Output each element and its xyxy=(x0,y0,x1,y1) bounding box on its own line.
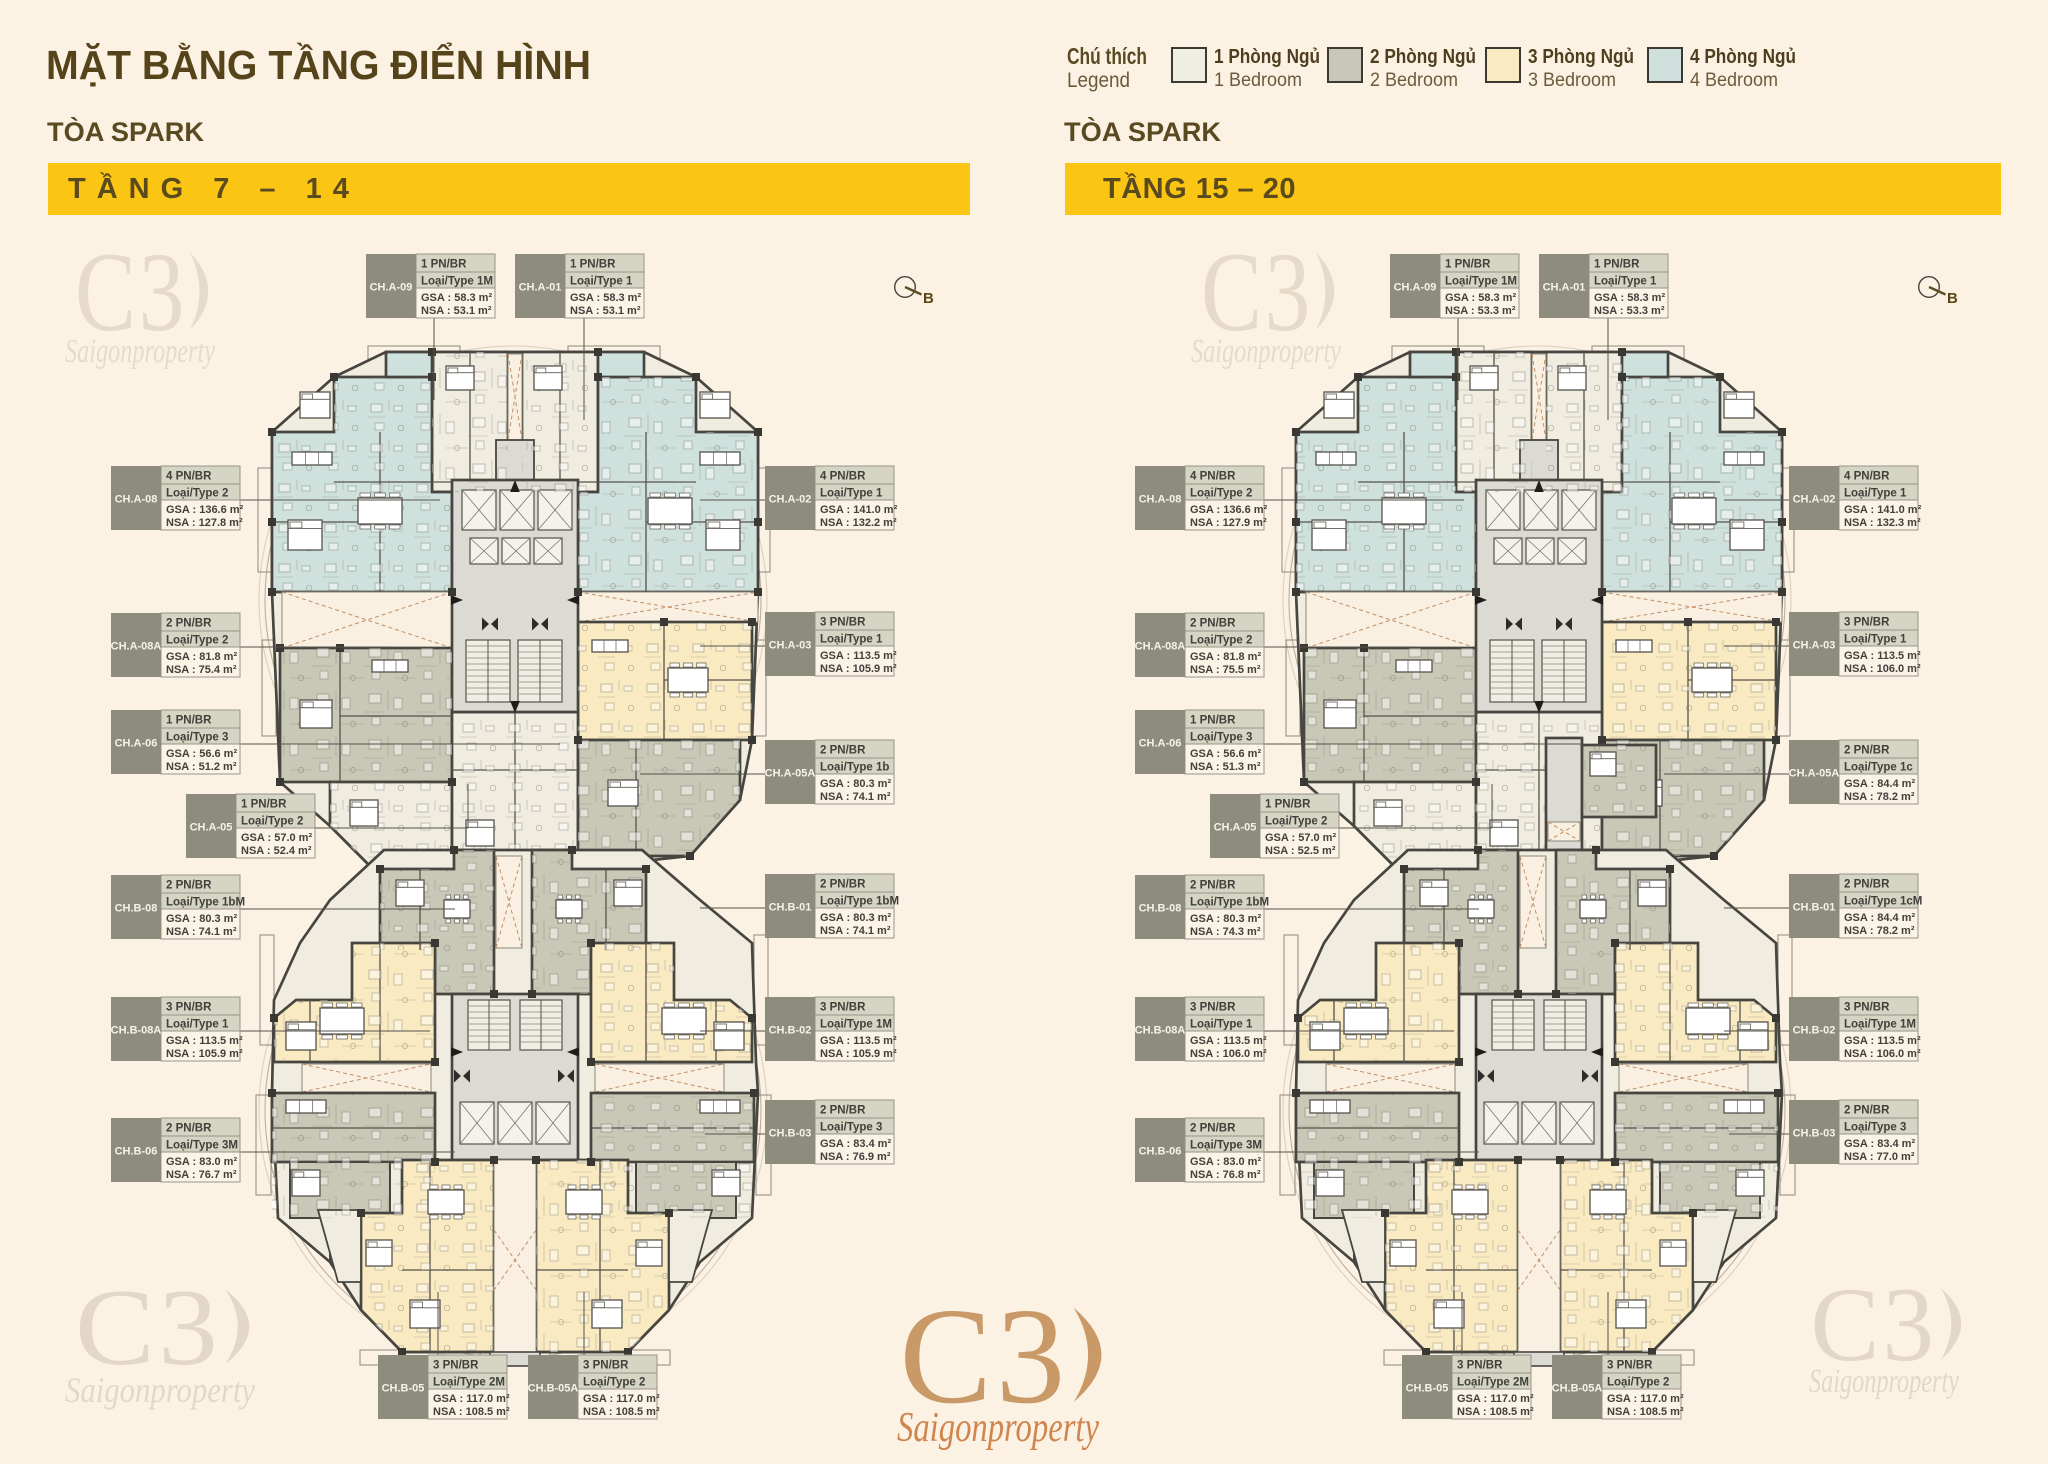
svg-text:NSA : 127.8 m²: NSA : 127.8 m² xyxy=(166,517,243,529)
svg-text:1 PN/BR: 1 PN/BR xyxy=(421,259,467,271)
svg-text:B: B xyxy=(923,290,934,307)
svg-text:NSA : 53.3 m²: NSA : 53.3 m² xyxy=(1445,305,1516,317)
svg-text:Loại/Type 1c: Loại/Type 1c xyxy=(1844,762,1913,774)
svg-text:GSA : 136.6 m²: GSA : 136.6 m² xyxy=(166,504,244,516)
svg-text:3 PN/BR: 3 PN/BR xyxy=(1457,1360,1503,1372)
svg-text:2 PN/BR: 2 PN/BR xyxy=(820,1105,866,1117)
svg-text:NSA : 52.4 m²: NSA : 52.4 m² xyxy=(241,845,312,857)
svg-text:CH.B-01: CH.B-01 xyxy=(1793,902,1836,914)
svg-text:Saigonproperty: Saigonproperty xyxy=(65,1370,255,1410)
svg-text:CH.B-08A: CH.B-08A xyxy=(111,1025,162,1037)
svg-text:CH.A-01: CH.A-01 xyxy=(1543,282,1586,294)
svg-text:NSA : 75.4 m²: NSA : 75.4 m² xyxy=(166,664,237,676)
svg-text:NSA : 74.1 m²: NSA : 74.1 m² xyxy=(166,926,237,938)
svg-text:Loại/Type 2: Loại/Type 2 xyxy=(166,488,228,500)
svg-text:MẶT BẰNG TẦNG ĐIỂN HÌNH: MẶT BẰNG TẦNG ĐIỂN HÌNH xyxy=(46,41,591,88)
svg-text:1 PN/BR: 1 PN/BR xyxy=(1594,259,1640,271)
svg-text:Saigonproperty: Saigonproperty xyxy=(65,333,216,370)
svg-text:NSA : 132.2 m²: NSA : 132.2 m² xyxy=(820,517,897,529)
svg-text:Chú thích: Chú thích xyxy=(1067,43,1147,69)
svg-text:CH.A-03: CH.A-03 xyxy=(1793,640,1836,652)
svg-text:CH.A-02: CH.A-02 xyxy=(1793,494,1836,506)
svg-text:GSA : 83.0 m²: GSA : 83.0 m² xyxy=(166,1156,237,1168)
svg-text:3 PN/BR: 3 PN/BR xyxy=(433,1360,479,1372)
svg-text:B: B xyxy=(1947,290,1958,307)
svg-text:3 PN/BR: 3 PN/BR xyxy=(1607,1360,1653,1372)
svg-text:NSA : 76.8 m²: NSA : 76.8 m² xyxy=(1190,1169,1261,1181)
svg-text:GSA : 84.4 m²: GSA : 84.4 m² xyxy=(1844,912,1915,924)
svg-text:GSA : 58.3 m²: GSA : 58.3 m² xyxy=(570,292,641,304)
svg-text:NSA : 78.2 m²: NSA : 78.2 m² xyxy=(1844,791,1915,803)
svg-text:3 PN/BR: 3 PN/BR xyxy=(166,1002,212,1014)
svg-text:1 Bedroom: 1 Bedroom xyxy=(1214,70,1302,91)
svg-text:CH.A-09: CH.A-09 xyxy=(1394,282,1437,294)
svg-text:GSA : 141.0 m²: GSA : 141.0 m² xyxy=(820,504,898,516)
svg-text:3 PN/BR: 3 PN/BR xyxy=(583,1360,629,1372)
svg-text:TẦNG 7 – 14: TẦNG 7 – 14 xyxy=(68,171,360,205)
svg-text:GSA : 113.5 m²: GSA : 113.5 m² xyxy=(820,650,897,662)
svg-text:TÒA SPARK: TÒA SPARK xyxy=(47,116,204,147)
svg-text:CH.B-05: CH.B-05 xyxy=(382,1383,425,1395)
svg-text:CH.A-05A: CH.A-05A xyxy=(765,768,816,780)
svg-text:NSA : 106.0 m²: NSA : 106.0 m² xyxy=(1190,1048,1267,1060)
svg-text:Loại/Type 1M: Loại/Type 1M xyxy=(1445,276,1517,288)
svg-text:Loại/Type 1M: Loại/Type 1M xyxy=(1844,1019,1916,1031)
svg-text:2 PN/BR: 2 PN/BR xyxy=(1190,1123,1236,1135)
svg-text:GSA : 81.8 m²: GSA : 81.8 m² xyxy=(1190,651,1261,663)
svg-text:TÒA SPARK: TÒA SPARK xyxy=(1064,116,1221,147)
svg-text:Loại/Type 1M: Loại/Type 1M xyxy=(421,276,493,288)
svg-text:NSA : 51.2 m²: NSA : 51.2 m² xyxy=(166,761,237,773)
svg-text:CH.B-05: CH.B-05 xyxy=(1406,1383,1449,1395)
svg-text:CH.B-08A: CH.B-08A xyxy=(1135,1025,1186,1037)
svg-text:2 PN/BR: 2 PN/BR xyxy=(820,879,866,891)
svg-text:CH.B-03: CH.B-03 xyxy=(769,1128,812,1140)
svg-text:CH.B-03: CH.B-03 xyxy=(1793,1128,1836,1140)
svg-text:CH.A-06: CH.A-06 xyxy=(1139,738,1182,750)
svg-text:NSA : 51.3 m²: NSA : 51.3 m² xyxy=(1190,761,1261,773)
svg-text:NSA : 74.3 m²: NSA : 74.3 m² xyxy=(1190,926,1261,938)
svg-text:CH.B-05A: CH.B-05A xyxy=(528,1383,579,1395)
svg-text:NSA : 108.5 m²: NSA : 108.5 m² xyxy=(1607,1406,1684,1418)
svg-text:2 Phòng Ngủ: 2 Phòng Ngủ xyxy=(1370,46,1476,68)
svg-text:NSA : 76.7 m²: NSA : 76.7 m² xyxy=(166,1169,237,1181)
svg-text:Loại/Type 1bM: Loại/Type 1bM xyxy=(820,896,899,908)
svg-text:NSA : 108.5 m²: NSA : 108.5 m² xyxy=(433,1406,510,1418)
svg-text:GSA : 57.0 m²: GSA : 57.0 m² xyxy=(1265,832,1336,844)
svg-text:CH.B-06: CH.B-06 xyxy=(115,1146,158,1158)
svg-text:Loại/Type 1: Loại/Type 1 xyxy=(1190,1019,1253,1031)
svg-text:3 PN/BR: 3 PN/BR xyxy=(1190,1002,1236,1014)
svg-text:Loại/Type 1M: Loại/Type 1M xyxy=(820,1019,892,1031)
svg-text:Loại/Type 3M: Loại/Type 3M xyxy=(166,1140,238,1152)
svg-text:1 PN/BR: 1 PN/BR xyxy=(1190,715,1236,727)
svg-text:GSA : 113.5 m²: GSA : 113.5 m² xyxy=(1190,1035,1267,1047)
svg-text:2 PN/BR: 2 PN/BR xyxy=(166,1123,212,1135)
svg-text:CH.B-05A: CH.B-05A xyxy=(1552,1383,1603,1395)
svg-text:CH.A-08: CH.A-08 xyxy=(115,494,158,506)
svg-text:2 PN/BR: 2 PN/BR xyxy=(1844,879,1890,891)
svg-text:GSA : 113.5 m²: GSA : 113.5 m² xyxy=(1844,1035,1921,1047)
svg-text:NSA : 74.1 m²: NSA : 74.1 m² xyxy=(820,791,891,803)
svg-text:CH.A-08A: CH.A-08A xyxy=(111,641,162,653)
svg-text:NSA : 75.5 m²: NSA : 75.5 m² xyxy=(1190,664,1261,676)
svg-text:NSA : 108.5 m²: NSA : 108.5 m² xyxy=(1457,1406,1534,1418)
svg-text:GSA : 117.0 m²: GSA : 117.0 m² xyxy=(1607,1393,1684,1405)
svg-text:2 PN/BR: 2 PN/BR xyxy=(1190,618,1236,630)
svg-text:2 PN/BR: 2 PN/BR xyxy=(166,880,212,892)
svg-text:GSA : 117.0 m²: GSA : 117.0 m² xyxy=(433,1393,510,1405)
svg-text:Loại/Type 3M: Loại/Type 3M xyxy=(1190,1140,1262,1152)
svg-text:GSA : 80.3 m²: GSA : 80.3 m² xyxy=(166,913,237,925)
svg-text:NSA : 108.5 m²: NSA : 108.5 m² xyxy=(583,1406,660,1418)
svg-text:CH.B-06: CH.B-06 xyxy=(1139,1146,1182,1158)
svg-text:4 PN/BR: 4 PN/BR xyxy=(820,471,866,483)
svg-text:CH.A-03: CH.A-03 xyxy=(769,640,812,652)
svg-text:NSA : 74.1 m²: NSA : 74.1 m² xyxy=(820,925,891,937)
svg-text:3 PN/BR: 3 PN/BR xyxy=(1844,1002,1890,1014)
svg-text:GSA : 81.8 m²: GSA : 81.8 m² xyxy=(166,651,237,663)
svg-text:NSA : 52.5 m²: NSA : 52.5 m² xyxy=(1265,845,1336,857)
svg-text:CH.B-02: CH.B-02 xyxy=(769,1025,812,1037)
svg-text:GSA : 57.0 m²: GSA : 57.0 m² xyxy=(241,832,312,844)
svg-text:NSA : 105.9 m²: NSA : 105.9 m² xyxy=(820,1048,897,1060)
svg-text:Loại/Type 2M: Loại/Type 2M xyxy=(433,1377,505,1389)
svg-text:GSA : 113.5 m²: GSA : 113.5 m² xyxy=(820,1035,897,1047)
svg-text:NSA : 105.9 m²: NSA : 105.9 m² xyxy=(166,1048,243,1060)
svg-text:4 PN/BR: 4 PN/BR xyxy=(166,471,212,483)
svg-text:1 PN/BR: 1 PN/BR xyxy=(1445,259,1491,271)
svg-text:Loại/Type 3: Loại/Type 3 xyxy=(820,1122,882,1134)
svg-text:Loại/Type 1: Loại/Type 1 xyxy=(820,634,883,646)
svg-text:Loại/Type 2: Loại/Type 2 xyxy=(166,635,228,647)
svg-text:Loại/Type 1: Loại/Type 1 xyxy=(820,488,883,500)
svg-text:GSA : 117.0 m²: GSA : 117.0 m² xyxy=(583,1393,660,1405)
svg-text:Loại/Type 2: Loại/Type 2 xyxy=(1265,816,1327,828)
svg-text:Loại/Type 1: Loại/Type 1 xyxy=(1844,634,1907,646)
svg-text:Loại/Type 2: Loại/Type 2 xyxy=(1190,488,1252,500)
svg-text:NSA : 105.9 m²: NSA : 105.9 m² xyxy=(820,663,897,675)
svg-text:Loại/Type 1cM: Loại/Type 1cM xyxy=(1844,896,1922,908)
svg-text:GSA : 84.4 m²: GSA : 84.4 m² xyxy=(1844,778,1915,790)
svg-text:GSA : 113.5 m²: GSA : 113.5 m² xyxy=(166,1035,243,1047)
svg-text:Saigonproperty: Saigonproperty xyxy=(1809,1363,1960,1400)
svg-text:3 PN/BR: 3 PN/BR xyxy=(820,1002,866,1014)
svg-text:3 PN/BR: 3 PN/BR xyxy=(820,617,866,629)
svg-text:GSA : 80.3 m²: GSA : 80.3 m² xyxy=(1190,913,1261,925)
svg-text:Loại/Type 2M: Loại/Type 2M xyxy=(1457,1377,1529,1389)
svg-text:Loại/Type 1: Loại/Type 1 xyxy=(1844,488,1907,500)
svg-text:2 PN/BR: 2 PN/BR xyxy=(1190,880,1236,892)
svg-text:CH.A-05A: CH.A-05A xyxy=(1789,768,1840,780)
svg-text:1 PN/BR: 1 PN/BR xyxy=(166,715,212,727)
svg-text:4 PN/BR: 4 PN/BR xyxy=(1190,471,1236,483)
svg-text:Loại/Type 2: Loại/Type 2 xyxy=(1190,635,1252,647)
svg-text:NSA : 53.1 m²: NSA : 53.1 m² xyxy=(421,305,492,317)
svg-text:2 PN/BR: 2 PN/BR xyxy=(166,618,212,630)
svg-text:CH.A-06: CH.A-06 xyxy=(115,738,158,750)
svg-text:3 Bedroom: 3 Bedroom xyxy=(1528,70,1616,91)
svg-text:CH.A-08: CH.A-08 xyxy=(1139,494,1182,506)
svg-text:Loại/Type 1: Loại/Type 1 xyxy=(1594,276,1657,288)
svg-text:GSA : 80.3 m²: GSA : 80.3 m² xyxy=(820,778,891,790)
svg-text:NSA : 106.0 m²: NSA : 106.0 m² xyxy=(1844,1048,1921,1060)
svg-text:CH.A-05: CH.A-05 xyxy=(190,822,233,834)
svg-text:CH.A-01: CH.A-01 xyxy=(519,282,562,294)
svg-text:GSA : 83.4 m²: GSA : 83.4 m² xyxy=(820,1138,891,1150)
svg-text:GSA : 141.0 m²: GSA : 141.0 m² xyxy=(1844,504,1922,516)
svg-text:Loại/Type 2: Loại/Type 2 xyxy=(583,1377,645,1389)
svg-text:CH.B-08: CH.B-08 xyxy=(115,903,158,915)
svg-text:GSA : 113.5 m²: GSA : 113.5 m² xyxy=(1844,650,1921,662)
svg-text:GSA : 117.0 m²: GSA : 117.0 m² xyxy=(1457,1393,1534,1405)
svg-text:NSA : 53.1 m²: NSA : 53.1 m² xyxy=(570,305,641,317)
svg-text:Loại/Type 1b: Loại/Type 1b xyxy=(820,762,889,774)
svg-text:GSA : 136.6 m²: GSA : 136.6 m² xyxy=(1190,504,1268,516)
svg-text:Loại/Type 1bM: Loại/Type 1bM xyxy=(166,897,245,909)
svg-text:GSA : 80.3 m²: GSA : 80.3 m² xyxy=(820,912,891,924)
svg-text:Loại/Type 3: Loại/Type 3 xyxy=(166,732,228,744)
svg-text:Loại/Type 2: Loại/Type 2 xyxy=(1607,1377,1669,1389)
svg-text:CH.A-05: CH.A-05 xyxy=(1214,822,1257,834)
svg-text:TẦNG 15 – 20: TẦNG 15 – 20 xyxy=(1103,171,1296,205)
svg-text:CH.B-02: CH.B-02 xyxy=(1793,1025,1836,1037)
svg-text:1 PN/BR: 1 PN/BR xyxy=(241,799,287,811)
svg-text:NSA : 132.3 m²: NSA : 132.3 m² xyxy=(1844,517,1921,529)
svg-text:NSA : 78.2 m²: NSA : 78.2 m² xyxy=(1844,925,1915,937)
svg-text:CH.A-08A: CH.A-08A xyxy=(1135,641,1186,653)
svg-text:Loại/Type 3: Loại/Type 3 xyxy=(1844,1122,1906,1134)
svg-text:NSA : 76.9 m²: NSA : 76.9 m² xyxy=(820,1151,891,1163)
svg-text:2 PN/BR: 2 PN/BR xyxy=(820,745,866,757)
svg-text:Loại/Type 3: Loại/Type 3 xyxy=(1190,732,1252,744)
svg-text:GSA : 83.0 m²: GSA : 83.0 m² xyxy=(1190,1156,1261,1168)
svg-text:2 Bedroom: 2 Bedroom xyxy=(1370,70,1458,91)
svg-text:4 Bedroom: 4 Bedroom xyxy=(1690,70,1778,91)
svg-text:Saigonproperty: Saigonproperty xyxy=(1191,333,1342,370)
svg-text:3 Phòng Ngủ: 3 Phòng Ngủ xyxy=(1528,46,1634,68)
svg-text:NSA : 53.3 m²: NSA : 53.3 m² xyxy=(1594,305,1665,317)
svg-text:1 PN/BR: 1 PN/BR xyxy=(570,259,616,271)
svg-text:GSA : 58.3 m²: GSA : 58.3 m² xyxy=(1594,292,1665,304)
svg-text:GSA : 58.3 m²: GSA : 58.3 m² xyxy=(421,292,492,304)
svg-text:Loại/Type 1: Loại/Type 1 xyxy=(166,1019,229,1031)
svg-text:1 PN/BR: 1 PN/BR xyxy=(1265,799,1311,811)
svg-text:1 Phòng Ngủ: 1 Phòng Ngủ xyxy=(1214,46,1320,68)
svg-text:4 Phòng Ngủ: 4 Phòng Ngủ xyxy=(1690,46,1796,68)
svg-text:Legend: Legend xyxy=(1067,69,1130,92)
svg-text:CH.B-01: CH.B-01 xyxy=(769,902,812,914)
svg-text:GSA : 58.3 m²: GSA : 58.3 m² xyxy=(1445,292,1516,304)
svg-text:CH.B-08: CH.B-08 xyxy=(1139,903,1182,915)
svg-text:GSA : 56.6 m²: GSA : 56.6 m² xyxy=(166,748,237,760)
svg-text:CH.A-09: CH.A-09 xyxy=(370,282,413,294)
svg-text:2 PN/BR: 2 PN/BR xyxy=(1844,1105,1890,1117)
svg-text:CH.A-02: CH.A-02 xyxy=(769,494,812,506)
svg-text:Loại/Type 2: Loại/Type 2 xyxy=(241,816,303,828)
svg-text:NSA : 106.0 m²: NSA : 106.0 m² xyxy=(1844,663,1921,675)
svg-text:NSA : 77.0 m²: NSA : 77.0 m² xyxy=(1844,1151,1915,1163)
svg-text:4 PN/BR: 4 PN/BR xyxy=(1844,471,1890,483)
svg-text:Loại/Type 1bM: Loại/Type 1bM xyxy=(1190,897,1269,909)
svg-text:Loại/Type 1: Loại/Type 1 xyxy=(570,276,633,288)
svg-text:2 PN/BR: 2 PN/BR xyxy=(1844,745,1890,757)
svg-text:GSA : 83.4 m²: GSA : 83.4 m² xyxy=(1844,1138,1915,1150)
svg-text:Saigonproperty: Saigonproperty xyxy=(897,1405,1099,1451)
svg-text:3 PN/BR: 3 PN/BR xyxy=(1844,617,1890,629)
svg-text:GSA : 56.6 m²: GSA : 56.6 m² xyxy=(1190,748,1261,760)
svg-text:NSA : 127.9 m²: NSA : 127.9 m² xyxy=(1190,517,1267,529)
